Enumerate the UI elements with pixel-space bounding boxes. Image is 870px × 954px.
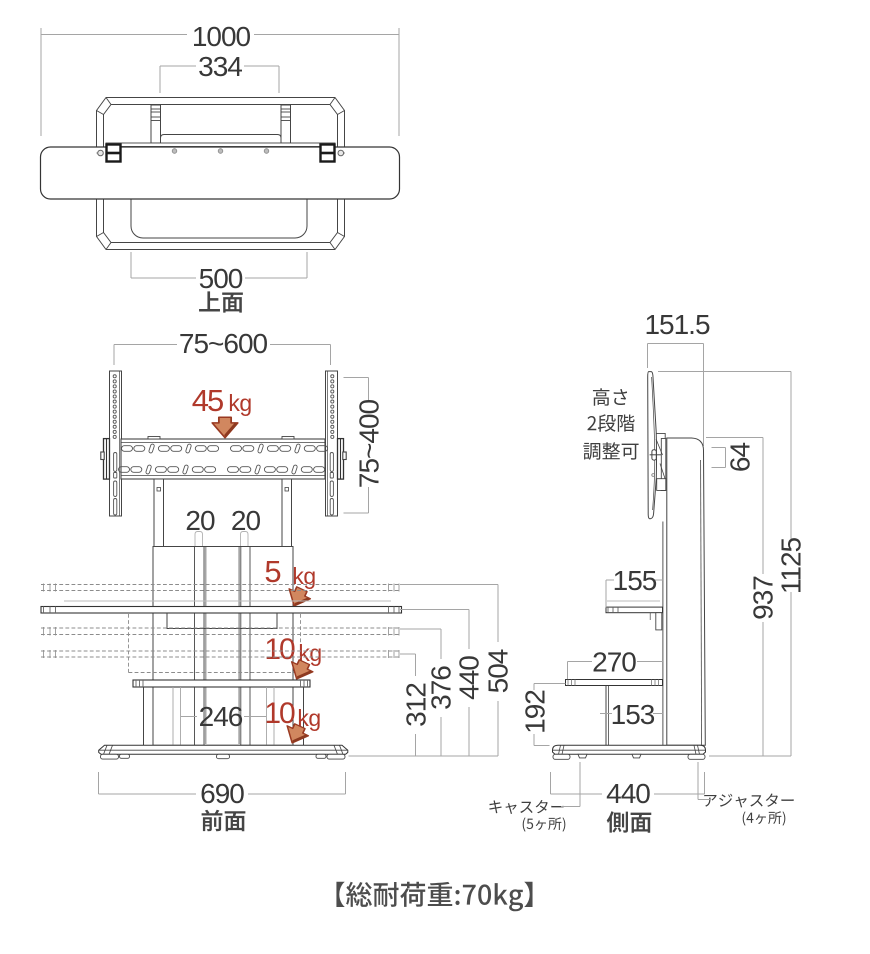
svg-text:376: 376 [426, 666, 457, 710]
svg-text:5: 5 [264, 554, 280, 589]
svg-text:151.5: 151.5 [644, 309, 709, 340]
svg-text:192: 192 [520, 690, 551, 734]
svg-text:45: 45 [192, 383, 223, 418]
svg-text:155: 155 [613, 565, 657, 596]
svg-text:334: 334 [198, 51, 242, 82]
svg-text:246: 246 [199, 701, 243, 732]
svg-text:440: 440 [454, 656, 485, 700]
svg-text:504: 504 [483, 649, 514, 693]
svg-text:1000: 1000 [192, 21, 251, 52]
svg-text:690: 690 [200, 778, 244, 809]
svg-text:75~600: 75~600 [179, 328, 268, 359]
svg-text:10: 10 [264, 697, 295, 730]
svg-text:kg: kg [292, 563, 315, 589]
svg-text:500: 500 [199, 263, 243, 294]
svg-text:75~400: 75~400 [354, 399, 385, 488]
svg-text:440: 440 [606, 778, 650, 809]
svg-text:1125: 1125 [776, 537, 807, 594]
svg-text:937: 937 [748, 576, 779, 620]
svg-text:10: 10 [264, 633, 295, 666]
svg-text:153: 153 [611, 699, 655, 730]
svg-text:kg: kg [228, 390, 251, 416]
svg-text:270: 270 [592, 647, 636, 678]
svg-text:64: 64 [725, 443, 756, 473]
